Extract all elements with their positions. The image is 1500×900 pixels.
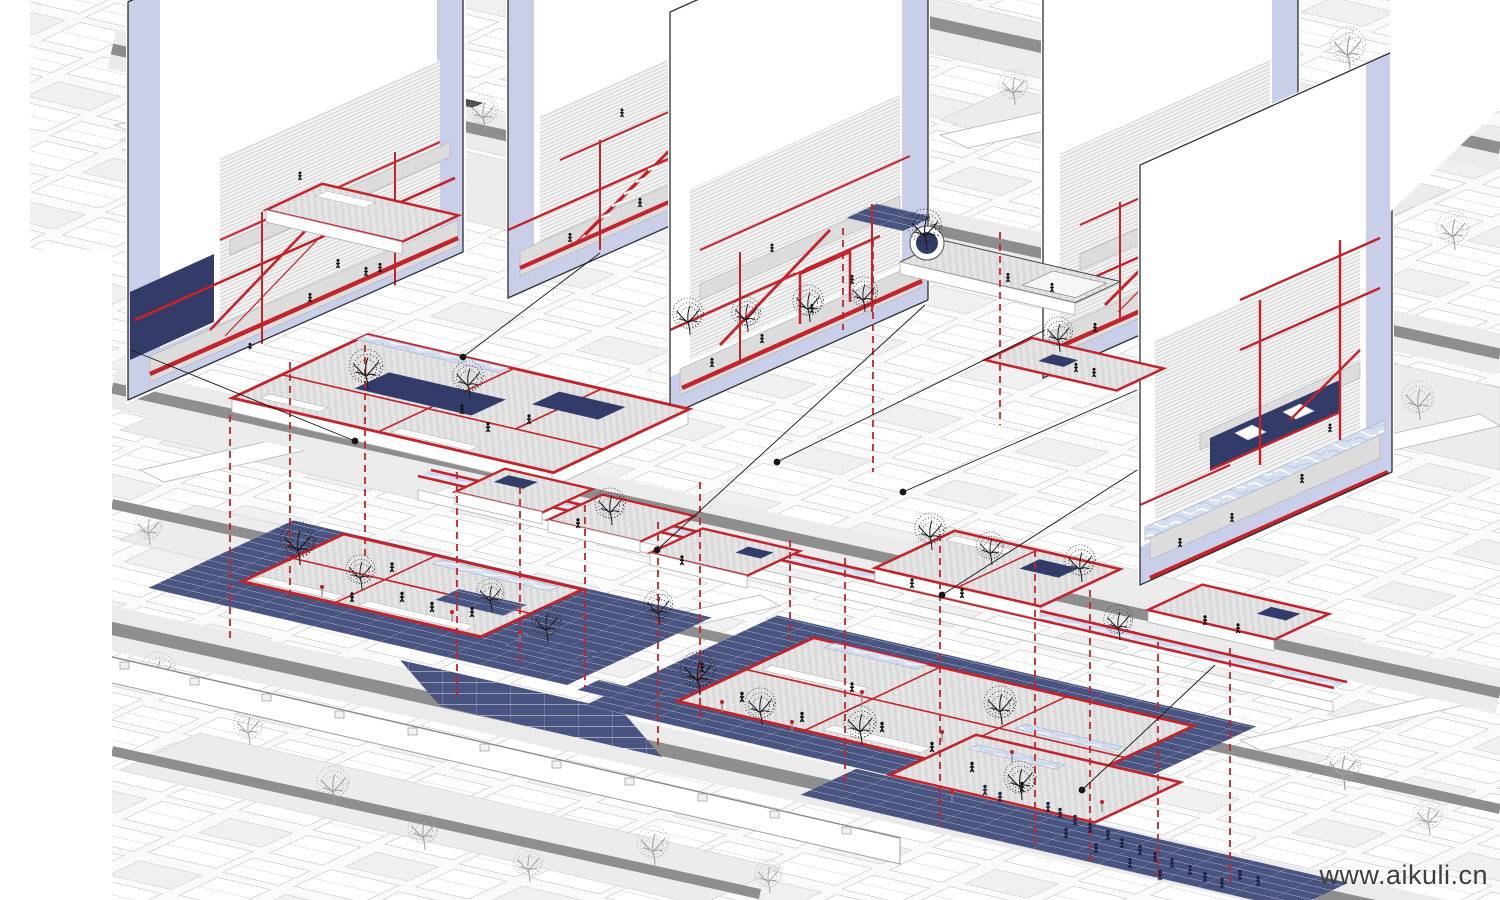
axonometric-diagram: www.aikuli.cn	[0, 0, 1500, 900]
diagram-canvas: www.aikuli.cn	[0, 0, 1500, 900]
watermark-text: www.aikuli.cn	[1318, 860, 1488, 890]
